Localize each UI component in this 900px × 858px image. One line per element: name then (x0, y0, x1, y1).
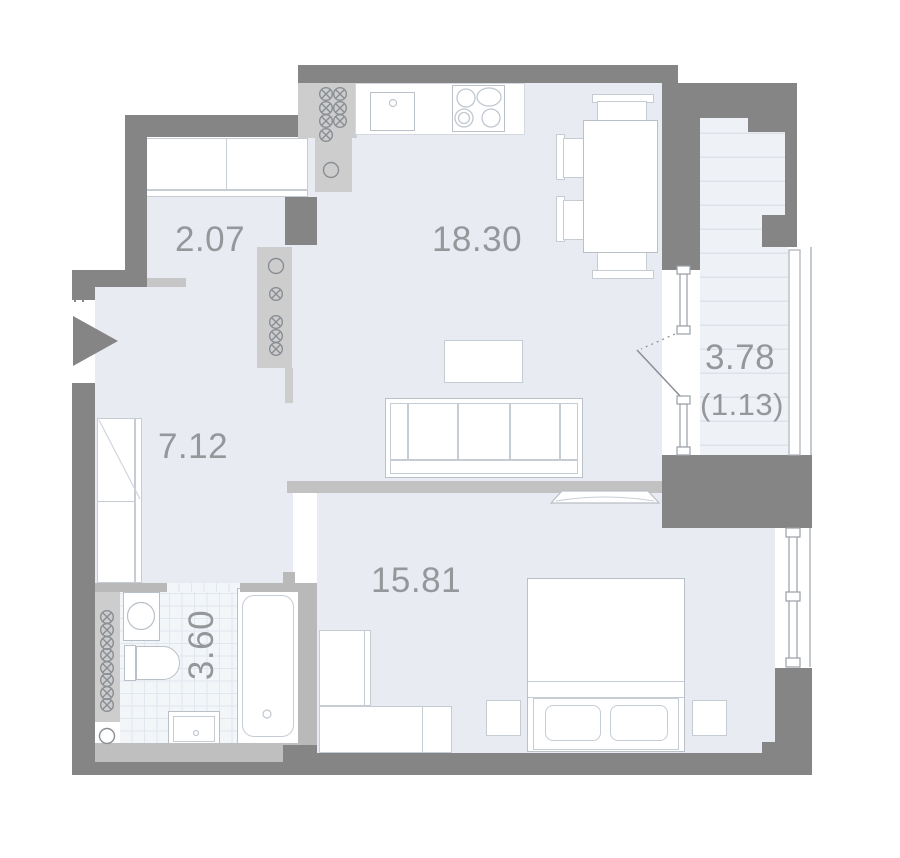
floor-plan: 2.07 18.30 7.12 3.60 15.81 3.78 (1.13) (0, 0, 900, 858)
vent-stack-icon (269, 259, 284, 356)
vent-stack-icon (320, 88, 347, 178)
door-jamb-tick (82, 297, 84, 302)
room-label-bedroom: 15.81 (346, 563, 486, 599)
door-jamb-tick (74, 297, 76, 302)
bedroom-window (786, 528, 811, 667)
room-label-bathroom: 3.60 (184, 585, 220, 705)
room-label-balcony: 3.78 (680, 340, 800, 376)
room-label-balcony-reduced: (1.13) (682, 387, 802, 423)
washer-drum-icon (128, 603, 155, 630)
entrance-arrow-icon (73, 316, 118, 366)
room-label-corridor: 7.12 (133, 429, 253, 465)
vent-stack-icon (100, 611, 115, 744)
room-label-hall: 2.07 (150, 222, 270, 258)
tv-icon (551, 491, 659, 503)
room-label-living-kitchen: 18.30 (407, 222, 547, 258)
sink-drain-icon (194, 731, 199, 736)
faucet-icon (390, 100, 397, 107)
tub-drain-icon (263, 710, 271, 718)
stove-burners-icon (455, 88, 501, 127)
